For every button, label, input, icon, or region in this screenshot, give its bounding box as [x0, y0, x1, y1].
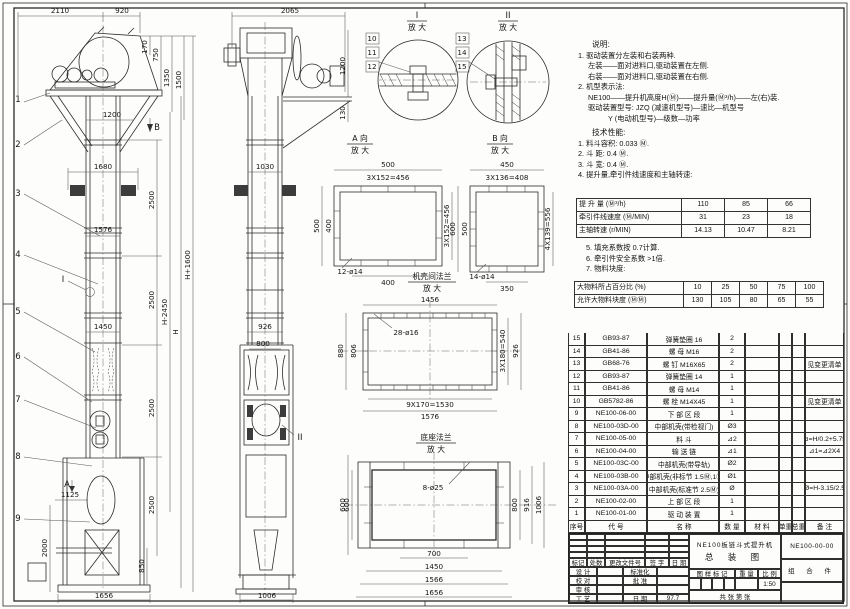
bom-code: GB5782-86 — [585, 396, 647, 409]
bom-note — [805, 471, 844, 484]
bom-unit-weight — [779, 346, 792, 359]
flange1-dim-top: 1456 — [421, 295, 440, 304]
bom-material — [745, 408, 779, 421]
callout-13: 13 — [457, 34, 466, 43]
bom-total-weight — [792, 371, 805, 384]
bom-note — [805, 458, 844, 471]
bom-unit-weight — [779, 371, 792, 384]
dim-h1600: H+1600 — [183, 250, 192, 280]
callout-2: 2 — [15, 140, 20, 150]
flange2-dim-right: 800 — [510, 498, 519, 512]
detail-ii-mark: II — [297, 433, 302, 443]
size-label: 大物料所占百分比 (%) — [575, 282, 684, 295]
bom-row: 2 NE100-02-00 上 部 区 段 1 — [568, 496, 844, 509]
bom-total-weight — [792, 508, 805, 521]
size-v1: 130 — [684, 295, 712, 308]
bom-name: 中部机壳(非标节 1.5Ⓜ,1Ⓜ) — [647, 471, 719, 484]
callout-14: 14 — [457, 48, 467, 57]
flange1-dim-bottom2: 1576 — [421, 412, 440, 421]
size-v2: 25 — [712, 282, 740, 295]
bom-h-mat: 材 料 — [745, 521, 779, 534]
bom-name: 输 送 链 — [647, 446, 719, 459]
perf-v3: 18 — [768, 212, 811, 225]
flange2-dim-right2: 916 — [522, 498, 531, 512]
dim-800: 800 — [256, 339, 270, 348]
bom-code: NE100-03A-00 — [585, 483, 647, 496]
flange2-title: 底座法兰 — [420, 432, 451, 442]
view-a-enlarged: A 向 放 大 500 3X152=456 500 400 3X152=456 … — [312, 133, 452, 287]
callout-11: 11 — [367, 48, 376, 57]
bom-h-note: 备 注 — [805, 521, 844, 534]
bom-material — [745, 421, 779, 434]
note-line: 驱动装置型号: JZQ (减速机型号)—速比—机型号 — [578, 103, 844, 114]
bom-unit-weight — [779, 446, 792, 459]
size-v4: 65 — [768, 295, 796, 308]
bom-material — [745, 383, 779, 396]
bom-h-name: 名 称 — [647, 521, 719, 534]
bom-row: 12 GB93-87 弹簧垫圈 14 1 — [568, 371, 844, 384]
perf-label: 提 升 量 (Ⓜ³/h) — [577, 199, 682, 212]
bom-row: 3 NE100-03A-00 中部机壳(标准节 2.5Ⓜ) Ø Ø=H-3.15… — [568, 483, 844, 496]
product-line1: NE100板链斗式提升机 — [697, 540, 773, 549]
rev-h2: 处数 — [587, 558, 605, 567]
callout-3: 3 — [15, 189, 20, 199]
bom-name: 螺 钉 M16X65 — [647, 358, 719, 371]
view-b-dim-left2: 500 — [460, 222, 469, 236]
view-b-holes: 14-ø14 — [469, 272, 495, 281]
perf-v2: 23 — [725, 212, 768, 225]
detail-ii-sub: 放 大 — [499, 22, 517, 32]
note-line: Y (电动机型号)—级数—功率 — [578, 114, 844, 125]
bom-name: 螺 栓 M14X45 — [647, 396, 719, 409]
dim-h2450: H-2450 — [160, 298, 169, 325]
flange2-dim-bottom: 700 — [427, 549, 441, 558]
dim-2000: 2000 — [40, 538, 49, 557]
view-b-dim-right: 4X139=556 — [543, 207, 552, 250]
bom-code: NE100-03C-00 — [585, 458, 647, 471]
bom-note — [805, 508, 844, 521]
callout-1: 1 — [15, 95, 20, 105]
tech-line: 3. 斗 宽: 0.4 Ⓜ. — [578, 160, 844, 171]
perf-v1: 14.13 — [682, 225, 725, 238]
flange2-sub: 放 大 — [427, 444, 445, 454]
bom-seq: 6 — [568, 446, 585, 459]
notes-block: 说明: 1. 驱动装置分左装和右装两种. 左装——面对进料口,驱动装置在左侧. … — [578, 40, 844, 181]
bom-code: GB93-87 — [585, 371, 647, 384]
bom-row: 5 NE100-03C-00 中部机壳(带导轨) Ø2 — [568, 458, 844, 471]
bom-total-weight — [792, 383, 805, 396]
bom-note: Ø=H-3.15/2.5 — [805, 483, 844, 496]
bom-qty: Ø1 — [719, 471, 745, 484]
bom-unit-weight — [779, 358, 792, 371]
bom-material — [745, 446, 779, 459]
scale-value: 1:50 — [758, 578, 781, 591]
note-line: 右装——面对进料口,驱动装置在右侧. — [578, 72, 844, 83]
role-date-label: 日 期 — [623, 594, 657, 603]
bom-unit-weight — [779, 483, 792, 496]
bom-note — [805, 383, 844, 396]
dim-170: 170 — [140, 40, 149, 54]
product-line2: 总 装 图 — [705, 551, 765, 563]
bom-table: 15 GB93-87 弹簧垫圈 16 2 14 GB41-86 螺 母 M16 … — [568, 333, 844, 533]
bom-seq: 14 — [568, 346, 585, 359]
bom-note — [805, 371, 844, 384]
dim-1500: 1500 — [174, 70, 183, 89]
flange2-dim-bottom2: 1450 — [425, 562, 444, 571]
bom-row: 14 GB41-86 螺 母 M16 2 — [568, 346, 844, 359]
bom-unit-weight — [779, 421, 792, 434]
bom-material — [745, 371, 779, 384]
bom-row: 1 NE100-01-00 驱 动 装 置 1 — [568, 508, 844, 521]
bom-material — [745, 358, 779, 371]
bom-material — [745, 508, 779, 521]
bom-material — [745, 483, 779, 496]
role-design: 设 计 — [569, 567, 597, 576]
tech-title: 技术性能: — [578, 128, 844, 139]
bom-header-row: 序号 代 号 名 称 数 量 材 料 单重 总重 备 注 — [568, 521, 844, 534]
stamp-h1: 图 样 标 记 — [689, 569, 735, 578]
dim-1125: 1125 — [61, 490, 79, 499]
detail-i-mark: I — [62, 275, 65, 285]
view-a-mark: A — [64, 480, 70, 490]
bom-row: 15 GB93-87 弹簧垫圈 16 2 — [568, 333, 844, 346]
bom-row: 11 GB41-86 螺 母 M14 1 — [568, 383, 844, 396]
bom-row: 13 GB68-76 螺 钉 M16X65 2 见变更清单 — [568, 358, 844, 371]
tech-line: 1. 料斗容积: 0.033 Ⓜ. — [578, 139, 844, 150]
bom-material — [745, 458, 779, 471]
bom-qty: ⊿1 — [719, 446, 745, 459]
casing-flange-detail: 机壳间法兰 放 大 1456 28-ø16 880 806 3X180=540 … — [336, 271, 521, 421]
perf-label: 主轴转速 (r/MIN) — [577, 225, 682, 238]
flange1-dim-left: 880 — [336, 344, 345, 358]
tech-line: 2. 斗 距: 0.4 Ⓜ. — [578, 149, 844, 160]
bom-code: NE100-05-00 — [585, 433, 647, 446]
part-type: 组 合 件 — [781, 559, 843, 581]
bom-name: 螺 母 M14 — [647, 383, 719, 396]
view-front-elevation: I 2110 920 170 750 1350 1500 1200 B 1680… — [15, 6, 196, 603]
size-row: 大物料所占百分比 (%) 10 25 50 75 100 — [575, 282, 824, 295]
performance-table: 提 升 量 (Ⓜ³/h) 110 85 66 牵引件线速度 (Ⓜ/MIN) 31… — [576, 198, 811, 238]
bom-total-weight — [792, 471, 805, 484]
perf-row: 主轴转速 (r/MIN) 14.13 10.47 8.21 — [577, 225, 811, 238]
detail-ii-label: II — [505, 11, 510, 21]
bom-note — [805, 346, 844, 359]
drawing-sheet: I 2110 920 170 750 1350 1500 1200 B 1680… — [0, 0, 850, 609]
drawing-number: NE100-00-00 — [781, 534, 843, 559]
dim-1450: 1450 — [94, 322, 113, 331]
note-line: NE100——提升机高度H(Ⓜ)——提升量(Ⓜ³/h)——左(右)装. — [578, 93, 844, 104]
bom-name: 螺 母 M16 — [647, 346, 719, 359]
role-standard: 标准化 — [623, 567, 657, 576]
bom-material — [745, 333, 779, 346]
bom-total-weight — [792, 483, 805, 496]
bom-unit-weight — [779, 408, 792, 421]
dim-2065: 2065 — [281, 6, 299, 15]
dim-1006: 1006 — [258, 591, 277, 600]
size-label: 允许大物料块度 (ⓂⓂ) — [575, 295, 684, 308]
title-block-number-area: NE100-00-00 组 合 件 — [781, 534, 843, 603]
detail-ii: II 放 大 13 14 15 — [456, 11, 549, 123]
bom-qty: Ø3 — [719, 421, 745, 434]
bom-total-weight — [792, 346, 805, 359]
note-line: 1. 驱动装置分左装和右装两种. — [578, 51, 844, 62]
bom-qty: 1 — [719, 383, 745, 396]
role-process: 工 艺 — [569, 594, 597, 603]
callout-4: 4 — [15, 250, 20, 260]
bom-total-weight — [792, 446, 805, 459]
dim-1680: 1680 — [94, 162, 113, 171]
bom-total-weight — [792, 408, 805, 421]
note-line: 6. 牵引件安全系数 >1倍. — [586, 254, 836, 265]
bom-total-weight — [792, 421, 805, 434]
dim-1200: 1200 — [103, 110, 122, 119]
perf-row: 牵引件线速度 (Ⓜ/MIN) 31 23 18 — [577, 212, 811, 225]
flange2-holes: 8-ø25 — [423, 483, 444, 492]
bom-material — [745, 496, 779, 509]
dim-850: 850 — [137, 559, 146, 573]
bom-seq: 2 — [568, 496, 585, 509]
view-a-title: A 向 — [352, 133, 368, 143]
perf-label: 牵引件线速度 (Ⓜ/MIN) — [577, 212, 682, 225]
note-line: 2. 机型表示法: — [578, 82, 844, 93]
flange1-dim-left2: 806 — [349, 344, 358, 358]
dim-1200-v2: 1200 — [338, 56, 347, 75]
callout-8: 8 — [15, 452, 20, 462]
view-a-dim-bottom: 400 — [381, 278, 395, 287]
bom-total-weight — [792, 358, 805, 371]
bom-total-weight — [792, 496, 805, 509]
size-row: 允许大物料块度 (ⓂⓂ) 130 105 80 65 55 — [575, 295, 824, 308]
notes-block-2: 5. 填充系数按 0.7计算. 6. 牵引件安全系数 >1倍. 7. 物料块度: — [586, 243, 836, 275]
bom-code: NE100-02-00 — [585, 496, 647, 509]
bom-unit-weight — [779, 396, 792, 409]
bom-row: 10 GB5782-86 螺 栓 M14X45 1 见变更清单 — [568, 396, 844, 409]
dim-1350: 1350 — [162, 68, 171, 87]
bom-name: 弹簧垫圈 16 — [647, 333, 719, 346]
title-block: 标记 处数 更改文件号 签 字 日 期 设 计 标准化 校 对 批 准 审 核 … — [568, 533, 844, 604]
callout-5: 5 — [15, 307, 20, 317]
bom-unit-weight — [779, 508, 792, 521]
bom-qty: 1 — [719, 371, 745, 384]
bom-material — [745, 433, 779, 446]
flange1-dim-right2: 926 — [511, 344, 520, 358]
bom-qty: 2 — [719, 333, 745, 346]
bom-note — [805, 421, 844, 434]
detail-i-sub: 放 大 — [408, 22, 426, 32]
bom-row: 7 NE100-05-00 料 斗 ⊿2 ⊿=H/0.2+5.75 — [568, 433, 844, 446]
note-line: 7. 物料块度: — [586, 264, 836, 275]
flange1-sub: 放 大 — [423, 283, 441, 293]
bom-qty: 1 — [719, 396, 745, 409]
dim-2500-3: 2500 — [147, 398, 156, 417]
detail-i-label: I — [416, 11, 419, 21]
flange2-dim-bottom3: 1566 — [425, 575, 444, 584]
bom-note — [805, 333, 844, 346]
product-name: NE100板链斗式提升机 总 装 图 — [689, 534, 781, 569]
perf-v3: 66 — [768, 199, 811, 212]
dim-920: 920 — [115, 6, 129, 15]
perf-v2: 85 — [725, 199, 768, 212]
bom-qty: Ø — [719, 483, 745, 496]
bom-qty: 1 — [719, 508, 745, 521]
flange2-dim-left: 600 — [342, 498, 351, 512]
role-approve: 批 准 — [623, 576, 657, 585]
bom-code: GB41-86 — [585, 346, 647, 359]
bom-row: 8 NE100-03D-00 中部机壳(带检视门) Ø3 — [568, 421, 844, 434]
view-b-sub: 放 大 — [491, 145, 509, 155]
bom-seq: 15 — [568, 333, 585, 346]
bom-qty: ⊿2 — [719, 433, 745, 446]
bom-qty: Ø2 — [719, 458, 745, 471]
bom-code: GB68-76 — [585, 358, 647, 371]
bom-unit-weight — [779, 458, 792, 471]
view-a-sub: 放 大 — [351, 145, 369, 155]
perf-v1: 31 — [682, 212, 725, 225]
size-table: 大物料所占百分比 (%) 10 25 50 75 100 允许大物料块度 (ⓂⓂ… — [574, 281, 824, 308]
bom-seq: 1 — [568, 508, 585, 521]
note-line: 5. 填充系数按 0.7计算. — [586, 243, 836, 254]
rev-h3: 更改文件号 — [605, 558, 645, 567]
callout-7: 7 — [15, 395, 20, 405]
bom-material — [745, 396, 779, 409]
bom-h-uw: 单重 — [779, 521, 792, 534]
bom-code: NE100-04-00 — [585, 446, 647, 459]
bom-qty: 2 — [719, 358, 745, 371]
bom-note — [805, 408, 844, 421]
stamp-h3: 比 例 — [758, 569, 781, 578]
bom-name: 下 部 区 段 — [647, 408, 719, 421]
bom-name: 弹簧垫圈 14 — [647, 371, 719, 384]
bom-row: 6 NE100-04-00 输 送 链 ⊿1 ⊿1=⊿2X4 — [568, 446, 844, 459]
bom-note: ⊿1=⊿2X4 — [805, 446, 844, 459]
size-v3: 80 — [740, 295, 768, 308]
base-flange-detail: 底座法兰 放 大 8-ø25 600 800 916 1006 700 1450… — [342, 432, 556, 597]
dim-2110: 2110 — [51, 6, 70, 15]
bom-material — [745, 471, 779, 484]
bom-seq: 5 — [568, 458, 585, 471]
flange1-dim-right: 3X180=540 — [498, 329, 507, 372]
bom-seq: 4 — [568, 471, 585, 484]
bom-qty: 2 — [719, 346, 745, 359]
bom-h-tw: 总重 — [792, 521, 805, 534]
bom-total-weight — [792, 333, 805, 346]
bom-material — [745, 346, 779, 359]
bom-unit-weight — [779, 333, 792, 346]
callout-9: 9 — [15, 514, 20, 524]
bom-code: NE100-03D-00 — [585, 421, 647, 434]
dim-2500-1: 2500 — [147, 190, 156, 209]
role-date-value: 97.7 — [657, 594, 689, 603]
bom-note: 见变更清单 — [805, 358, 844, 371]
view-b-title: B 向 — [492, 133, 508, 143]
flange1-holes: 28-ø16 — [393, 328, 419, 337]
view-b-dim-bottom: 350 — [500, 284, 514, 293]
dim-750: 750 — [151, 48, 160, 62]
view-b-mark: B — [154, 123, 160, 133]
size-v1: 10 — [684, 282, 712, 295]
revision-header-row: 标记 处数 更改文件号 签 字 日 期 — [569, 558, 689, 567]
bom-unit-weight — [779, 383, 792, 396]
bom-h-code: 代 号 — [585, 521, 647, 534]
view-a-dim-top: 500 — [381, 160, 395, 169]
view-b-enlarged: B 向 放 大 450 3X136=408 600 500 4X139=556 … — [448, 133, 553, 293]
dim-2500-2: 2500 — [147, 290, 156, 309]
dim-926: 926 — [258, 322, 272, 331]
bom-name: 驱 动 装 置 — [647, 508, 719, 521]
dim-1030: 1030 — [256, 162, 275, 171]
dim-130: 130 — [338, 106, 347, 120]
bom-code: NE100-01-00 — [585, 508, 647, 521]
view-a-holes: 12-ø14 — [337, 267, 363, 276]
bom-row: 9 NE100-06-00 下 部 区 段 1 — [568, 408, 844, 421]
perf-v2: 10.47 — [725, 225, 768, 238]
callout-6: 6 — [15, 352, 20, 362]
tech-line: 4. 提升量,牵引件线速度和主轴转速: — [578, 170, 844, 181]
size-v5: 55 — [796, 295, 824, 308]
callout-10: 10 — [367, 34, 377, 43]
perf-row: 提 升 量 (Ⓜ³/h) 110 85 66 — [577, 199, 811, 212]
role-check: 校 对 — [569, 576, 597, 585]
perf-table: 提 升 量 (Ⓜ³/h) 110 85 66 牵引件线速度 (Ⓜ/MIN) 31… — [576, 198, 811, 238]
flange1-dim-bottom: 9X170=1530 — [406, 400, 454, 409]
callout-12: 12 — [367, 62, 376, 71]
bom-seq: 10 — [568, 396, 585, 409]
view-b-dim-left: 600 — [448, 222, 457, 236]
bom-code: GB93-87 — [585, 333, 647, 346]
size-v5: 100 — [796, 282, 824, 295]
flange2-dim-bottom4: 1656 — [425, 588, 444, 597]
notes-title: 说明: — [578, 40, 844, 51]
bom-seq: 7 — [568, 433, 585, 446]
role-audit: 审 核 — [569, 585, 597, 594]
detail-i: I 放 大 10 11 12 — [366, 11, 462, 120]
size-v2: 105 — [712, 295, 740, 308]
bom-note — [805, 496, 844, 509]
view-b-dim-top2: 3X136=408 — [486, 173, 529, 182]
note-line: 左装——面对进料口,驱动装置在左侧. — [578, 61, 844, 72]
dim-1656: 1656 — [95, 591, 114, 600]
bom-seq: 11 — [568, 383, 585, 396]
bom-unit-weight — [779, 471, 792, 484]
bom-seq: 3 — [568, 483, 585, 496]
bom-seq: 8 — [568, 421, 585, 434]
bom-name: 中部机壳(标准节 2.5Ⓜ) — [647, 483, 719, 496]
bom-name: 中部机壳(带检视门) — [647, 421, 719, 434]
view-a-dim-top2: 3X152=456 — [367, 173, 410, 182]
bom-note: 见变更清单 — [805, 396, 844, 409]
bom-code: NE100-06-00 — [585, 408, 647, 421]
bom-code: NE100-03B-00 — [585, 471, 647, 484]
lump-size-table: 大物料所占百分比 (%) 10 25 50 75 100 允许大物料块度 (ⓂⓂ… — [574, 281, 824, 308]
bom-qty: 1 — [719, 408, 745, 421]
perf-v1: 110 — [682, 199, 725, 212]
bom-seq: 12 — [568, 371, 585, 384]
view-b-dim-top: 450 — [500, 160, 514, 169]
bom-name: 料 斗 — [647, 433, 719, 446]
bom-row: 4 NE100-03B-00 中部机壳(非标节 1.5Ⓜ,1Ⓜ) Ø1 — [568, 471, 844, 484]
bom-seq: 13 — [568, 358, 585, 371]
size-v3: 50 — [740, 282, 768, 295]
bom-note: ⊿=H/0.2+5.75 — [805, 433, 844, 446]
view-side-elevation: II 2065 1200 130 1030 926 800 600 1006 — [224, 6, 352, 603]
bom-qty: 1 — [719, 496, 745, 509]
title-block-revision-area: 标记 处数 更改文件号 签 字 日 期 设 计 标准化 校 对 批 准 审 核 … — [569, 534, 689, 603]
bom-name: 中部机壳(带导轨) — [647, 458, 719, 471]
bom-code: GB41-86 — [585, 383, 647, 396]
title-block-stamp-area: NE100板链斗式提升机 总 装 图 图 样 标 记 重 量 比 例 1:50 … — [689, 534, 781, 603]
stamp-h2: 重 量 — [735, 569, 758, 578]
bom-total-weight — [792, 458, 805, 471]
